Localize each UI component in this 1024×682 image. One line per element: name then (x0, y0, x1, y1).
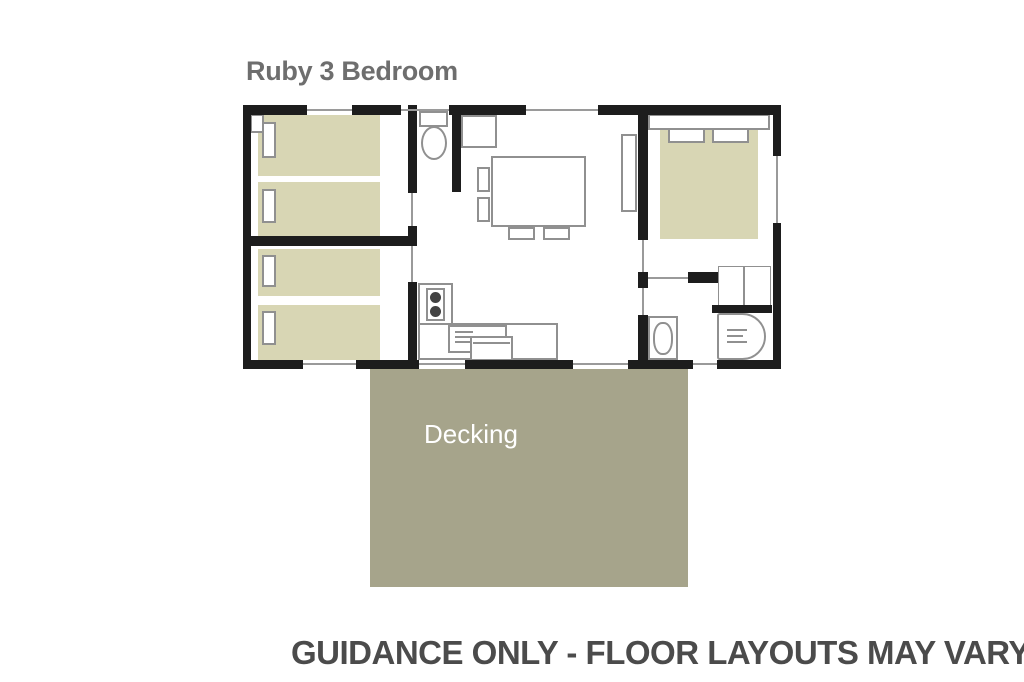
single-bed (258, 115, 380, 176)
headboard (648, 114, 770, 130)
sofa (621, 134, 637, 212)
hob-burner-icon (430, 306, 441, 317)
window (693, 363, 717, 365)
outer-wall-right (773, 105, 781, 156)
disclaimer-text: GUIDANCE ONLY - FLOOR LAYOUTS MAY VARY (291, 634, 1024, 672)
wc-wall (452, 105, 461, 192)
outer-wall-top (243, 105, 307, 115)
pillow (262, 255, 276, 287)
deck-area: Decking (370, 369, 688, 587)
wardrobe-divider (743, 267, 745, 305)
hob-burner-icon (430, 292, 441, 303)
outer-wall-bottom (465, 360, 573, 369)
window (303, 363, 356, 365)
single-bed (258, 182, 380, 239)
door-opening (642, 240, 644, 272)
bathroom-wall (638, 315, 648, 369)
deck-label: Decking (424, 419, 518, 450)
door-opening (411, 193, 413, 226)
chair (477, 167, 490, 192)
pillow (668, 128, 705, 143)
wall-post (638, 272, 648, 288)
kitchen-appliance (470, 336, 513, 361)
pillow (262, 311, 276, 345)
shower-line (727, 341, 747, 343)
interior-wall (408, 282, 417, 365)
window (526, 109, 598, 111)
outer-wall-right (773, 223, 781, 369)
outer-wall-top (352, 105, 401, 115)
interior-wall (408, 105, 417, 193)
single-bed (258, 305, 380, 360)
chair (508, 227, 535, 240)
outer-wall-bottom (243, 360, 303, 369)
wardrobe-wall (712, 305, 772, 313)
window (307, 109, 352, 111)
floor-plan-page: Decking (0, 0, 1024, 682)
appliance-line (473, 342, 510, 344)
window (776, 156, 778, 223)
drainer-line (455, 336, 470, 338)
window (401, 109, 449, 111)
pillow (262, 189, 276, 223)
pillow (712, 128, 749, 143)
shower-line (727, 329, 747, 331)
bedroom-rear-wall (688, 272, 718, 283)
double-bed (660, 129, 758, 239)
dining-table (491, 156, 586, 227)
chair (543, 227, 570, 240)
bench-seat (461, 115, 497, 148)
outer-wall-top (598, 105, 781, 115)
drainer-line (455, 331, 473, 333)
single-bed (258, 249, 380, 296)
outer-wall-bottom (717, 360, 781, 369)
bedroom-wall (638, 105, 648, 240)
plan-title: Ruby 3 Bedroom (246, 56, 458, 87)
door-opening (411, 246, 413, 282)
kitchen-door (419, 363, 465, 365)
door-opening (642, 288, 644, 315)
bedroom-divider-wall (243, 236, 417, 246)
hallway-opening (648, 277, 688, 279)
pillow (262, 122, 276, 158)
toilet-icon (421, 126, 447, 160)
shower-line (727, 335, 743, 337)
chair (477, 197, 490, 222)
toilet-cistern-icon (419, 111, 448, 127)
toilet-bowl-icon (653, 322, 673, 355)
patio-door (573, 363, 628, 365)
